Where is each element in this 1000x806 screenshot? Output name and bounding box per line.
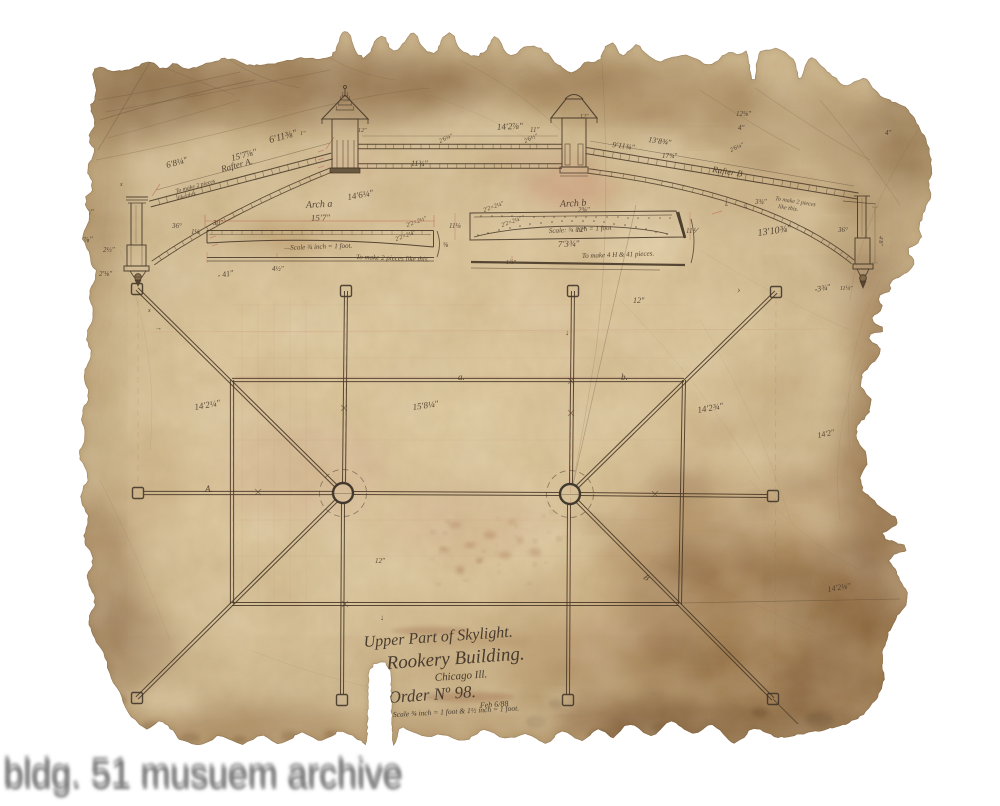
svg-text:12⅝″: 12⅝″ bbox=[736, 110, 751, 118]
svg-text:11¼″: 11¼″ bbox=[840, 286, 853, 292]
svg-text:4″: 4″ bbox=[885, 129, 892, 137]
svg-text:2½″: 2½″ bbox=[103, 246, 115, 254]
svg-text:11″: 11″ bbox=[530, 126, 539, 134]
svg-text:12″: 12″ bbox=[580, 114, 589, 120]
svg-text:b.: b. bbox=[621, 372, 628, 382]
svg-text:↓: ↓ bbox=[565, 328, 569, 337]
svg-text:17¾″: 17¾″ bbox=[662, 152, 677, 160]
svg-text:14′2⅞″: 14′2⅞″ bbox=[497, 121, 524, 132]
svg-text:›: › bbox=[737, 285, 740, 296]
svg-text:1½″: 1½″ bbox=[506, 259, 517, 266]
svg-text:12″: 12″ bbox=[375, 557, 385, 565]
svg-text:↓: ↓ bbox=[744, 201, 748, 210]
svg-text:4″: 4″ bbox=[738, 124, 745, 132]
svg-text:7′3¾″: 7′3¾″ bbox=[558, 238, 580, 249]
svg-text:30″: 30″ bbox=[212, 219, 223, 227]
svg-text:1″: 1″ bbox=[300, 131, 306, 137]
svg-text:Arch a: Arch a bbox=[305, 199, 333, 211]
svg-text:11⅛: 11⅛ bbox=[449, 222, 461, 230]
svg-text:36°: 36° bbox=[171, 222, 182, 230]
svg-text:A.: A. bbox=[204, 484, 213, 494]
svg-text:a.: a. bbox=[458, 372, 465, 382]
svg-text:4′8″: 4′8″ bbox=[877, 236, 884, 246]
svg-text:15′7″: 15′7″ bbox=[311, 212, 331, 223]
svg-text:36°: 36° bbox=[837, 226, 848, 234]
svg-text:L: L bbox=[724, 202, 729, 208]
svg-text:12″: 12″ bbox=[358, 128, 367, 134]
svg-text:1⅛: 1⅛ bbox=[191, 228, 201, 236]
svg-text:3​​¾″: 3​​¾″ bbox=[754, 198, 767, 206]
svg-text:↓: ↓ bbox=[380, 613, 384, 622]
svg-text:x: x bbox=[147, 308, 151, 314]
svg-text:12″: 12″ bbox=[633, 296, 645, 305]
svg-text:→: → bbox=[155, 324, 162, 332]
svg-text:Arch b: Arch b bbox=[559, 198, 587, 210]
svg-text:11¾″: 11¾″ bbox=[411, 159, 428, 168]
svg-text:2′⅛″: 2′⅛″ bbox=[99, 270, 112, 278]
svg-text:x: x bbox=[119, 182, 123, 188]
svg-text:4½″: 4½″ bbox=[272, 265, 284, 273]
svg-text:bldg. 51 musuem archive: bldg. 51 musuem archive bbox=[4, 752, 403, 798]
svg-text:⅝: ⅝ bbox=[443, 241, 449, 249]
